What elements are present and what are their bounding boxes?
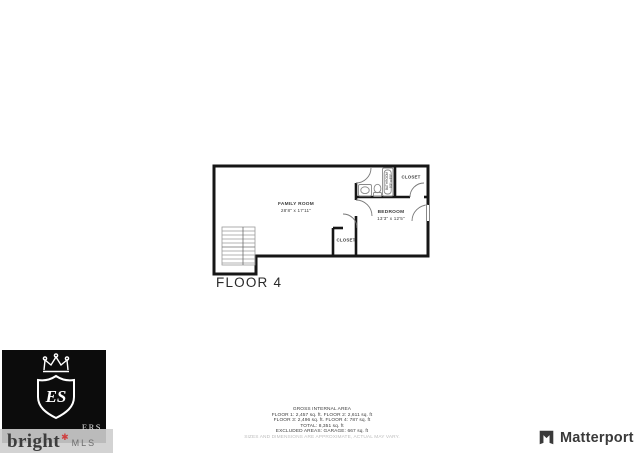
bathroom-dims: 5'2" x 8'5" — [389, 172, 393, 190]
bright-mls-star-icon: ✱ — [61, 432, 69, 443]
bright-mls-suffix: MLS — [72, 438, 97, 448]
floor-plan-page: FAMILY ROOM 28'8" x 17'11" BEDROOM 13'3"… — [0, 0, 640, 453]
agency-monogram: ES — [45, 387, 67, 406]
matterport-icon — [538, 429, 555, 446]
area-summary: GROSS INTERNAL AREA FLOOR 1: 2,457 sq. f… — [202, 407, 442, 441]
agency-crest-icon: ES — [2, 350, 106, 425]
area-summary-disclaimer: SIZES AND DIMENSIONS ARE APPROXIMATE, AC… — [202, 435, 442, 441]
bright-mls-wordmark: bright — [7, 432, 60, 451]
family-room-dims: 28'8" x 17'11" — [278, 208, 314, 214]
bright-mls-watermark: bright ✱ MLS — [0, 429, 113, 453]
closet-top-label: CLOSET — [401, 174, 420, 180]
bedroom-right-opening — [426, 205, 431, 221]
bedroom-label: BEDROOM 13'3" x 12'5" — [377, 210, 405, 222]
closet-bottom-label: CLOSET — [336, 237, 355, 243]
bathroom-label: BATHROOM 5'2" x 8'5" — [385, 172, 393, 190]
family-room-label: FAMILY ROOM 28'8" x 17'11" — [278, 202, 314, 214]
floor-caption: FLOOR 4 — [216, 275, 282, 290]
matterport-logo: Matterport — [538, 429, 634, 446]
bedroom-dims: 13'3" x 12'5" — [377, 216, 405, 222]
matterport-label: Matterport — [560, 430, 634, 446]
